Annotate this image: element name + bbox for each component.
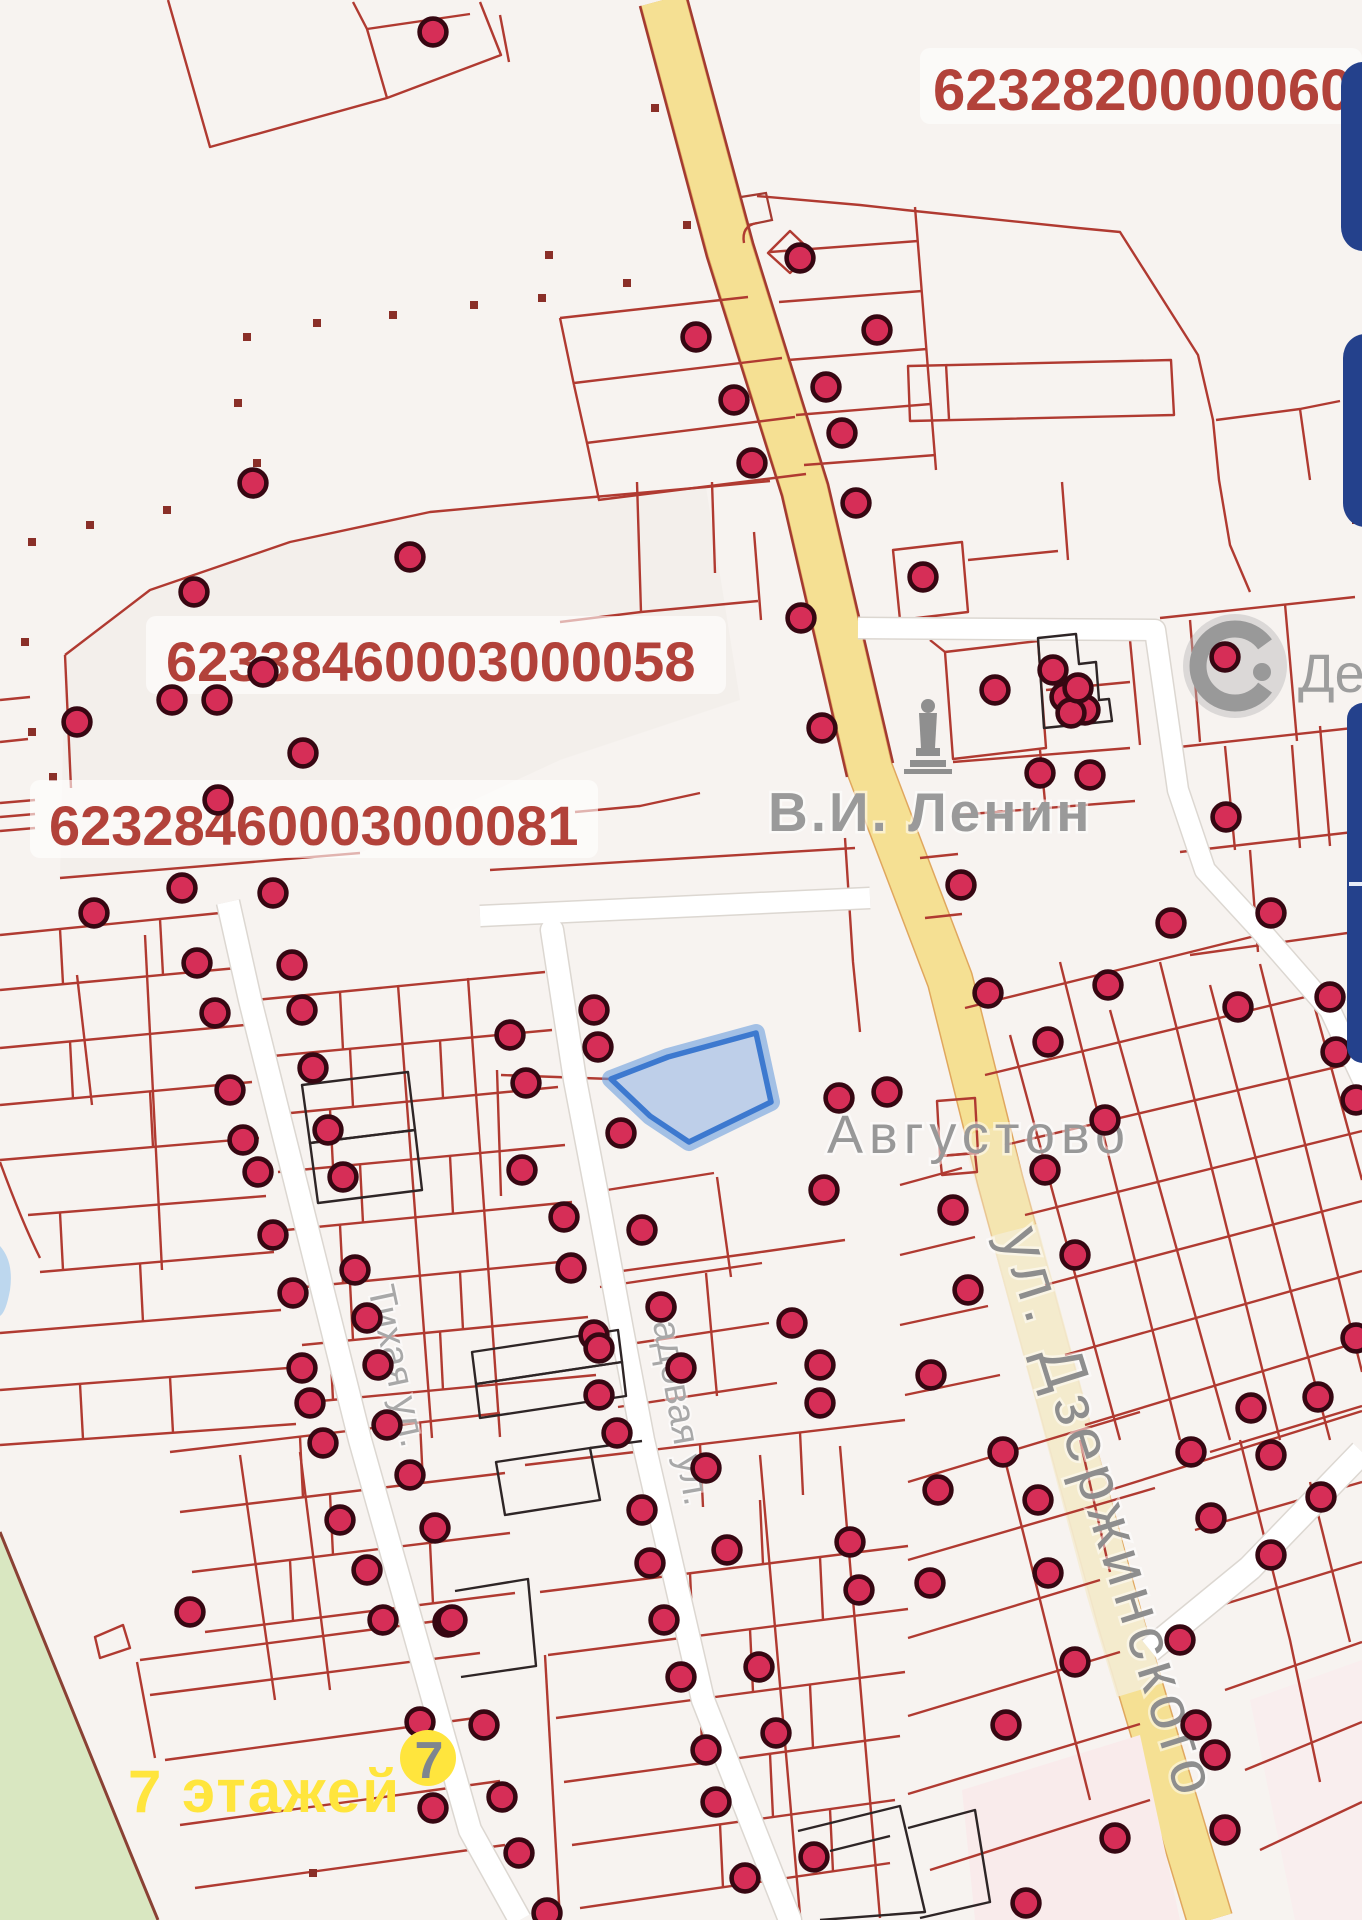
svg-text:62328460003000081: 62328460003000081 [49,794,578,857]
svg-text:Де: Де [1298,644,1362,704]
svg-text:7: 7 [415,1732,444,1790]
svg-text:Августово: Августово [827,1105,1131,1165]
svg-text:В.И. Ленин: В.И. Ленин [768,781,1093,843]
svg-text:62328200000600: 62328200000600 [933,58,1362,123]
svg-text:62338460003000058: 62338460003000058 [166,630,695,693]
svg-text:7 этажей: 7 этажей [128,1758,401,1825]
